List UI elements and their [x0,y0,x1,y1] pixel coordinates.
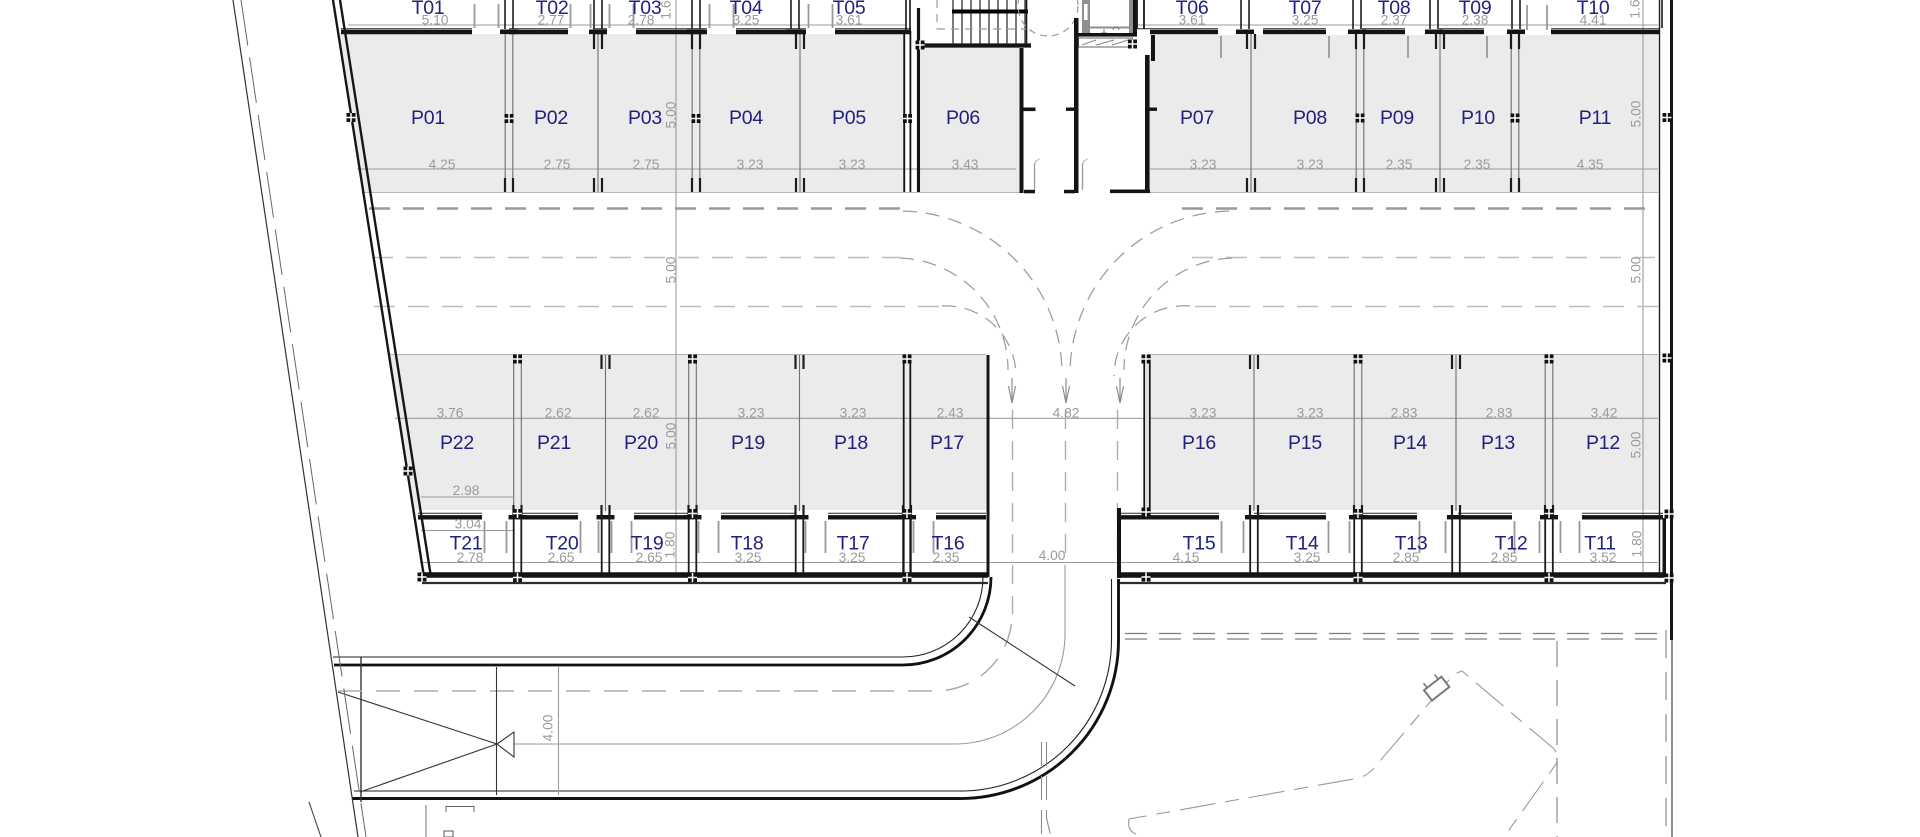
svg-text:2.62: 2.62 [633,406,660,421]
svg-text:2.62: 2.62 [545,406,572,421]
svg-text:P09: P09 [1380,107,1414,129]
svg-text:3.42: 3.42 [1591,406,1618,421]
svg-text:P01: P01 [411,107,445,129]
svg-text:3.23: 3.23 [840,406,867,421]
svg-text:3.25: 3.25 [735,550,762,565]
svg-text:3.25: 3.25 [1294,550,1321,565]
svg-text:P20: P20 [624,432,658,454]
svg-text:1.80: 1.80 [1630,530,1645,557]
svg-text:3.52: 3.52 [1590,550,1617,565]
svg-text:4.82: 4.82 [1053,406,1080,421]
svg-text:2.98: 2.98 [453,483,480,498]
svg-text:2.65: 2.65 [548,550,575,565]
svg-text:2.78: 2.78 [628,13,655,28]
svg-text:4.41: 4.41 [1580,13,1607,28]
svg-text:P02: P02 [534,107,568,129]
svg-text:2.85: 2.85 [1491,550,1518,565]
svg-text:3.23: 3.23 [1190,406,1217,421]
svg-text:5.10: 5.10 [422,13,449,28]
svg-text:2.35: 2.35 [1464,157,1491,172]
svg-text:5.00: 5.00 [664,256,679,283]
svg-text:P19: P19 [731,432,765,454]
svg-text:P10: P10 [1461,107,1495,129]
svg-text:P06: P06 [946,107,980,129]
svg-text:P18: P18 [834,432,868,454]
svg-text:P15: P15 [1288,432,1322,454]
svg-text:2.43: 2.43 [937,406,964,421]
svg-text:2.35: 2.35 [933,550,960,565]
svg-text:P08: P08 [1293,107,1327,129]
svg-text:P21: P21 [537,432,571,454]
svg-text:P03: P03 [628,107,662,129]
svg-text:4.00: 4.00 [1039,548,1066,563]
svg-text:3.23: 3.23 [1297,157,1324,172]
svg-text:5.00: 5.00 [1629,431,1644,458]
svg-text:3.25: 3.25 [839,550,866,565]
svg-text:3.23: 3.23 [738,406,765,421]
svg-text:3.04: 3.04 [455,517,482,532]
svg-text:4.00: 4.00 [541,714,556,741]
svg-text:P17: P17 [930,432,964,454]
svg-text:P12: P12 [1586,432,1620,454]
svg-text:2.75: 2.75 [633,157,660,172]
svg-text:3.25: 3.25 [733,13,760,28]
svg-text:1.80: 1.80 [663,531,678,558]
svg-text:2.83: 2.83 [1391,406,1418,421]
svg-text:3.61: 3.61 [1179,13,1206,28]
svg-text:3.25: 3.25 [1292,13,1319,28]
svg-text:P07: P07 [1180,107,1214,129]
svg-text:2.65: 2.65 [636,550,663,565]
svg-text:4.35: 4.35 [1577,157,1604,172]
svg-text:1.6: 1.6 [1628,0,1643,19]
svg-text:5.00: 5.00 [1629,100,1644,127]
svg-text:P16: P16 [1182,432,1216,454]
svg-text:4.25: 4.25 [429,157,456,172]
svg-text:2.83: 2.83 [1486,406,1513,421]
svg-text:5.00: 5.00 [664,422,679,449]
svg-text:3.76: 3.76 [437,406,464,421]
svg-text:P14: P14 [1393,432,1427,454]
svg-text:2.37: 2.37 [1381,13,1408,28]
svg-text:3.23: 3.23 [839,157,866,172]
svg-text:3.23: 3.23 [737,157,764,172]
svg-text:2.75: 2.75 [544,157,571,172]
svg-text:5.00: 5.00 [1629,256,1644,283]
svg-text:3.23: 3.23 [1297,406,1324,421]
svg-text:3.23: 3.23 [1190,157,1217,172]
svg-text:2.78: 2.78 [457,550,484,565]
svg-text:P22: P22 [440,432,474,454]
svg-text:P04: P04 [729,107,763,129]
svg-text:2.35: 2.35 [1386,157,1413,172]
svg-text:P05: P05 [832,107,866,129]
svg-text:4.15: 4.15 [1173,550,1200,565]
svg-text:3.43: 3.43 [952,157,979,172]
svg-text:5.00: 5.00 [664,101,679,128]
svg-text:1.6: 1.6 [659,0,674,20]
svg-text:P11: P11 [1579,107,1612,129]
svg-text:2.85: 2.85 [1393,550,1420,565]
svg-text:P13: P13 [1481,432,1515,454]
svg-text:2.38: 2.38 [1462,13,1489,28]
svg-text:3.61: 3.61 [836,13,863,28]
svg-text:2.77: 2.77 [538,13,565,28]
